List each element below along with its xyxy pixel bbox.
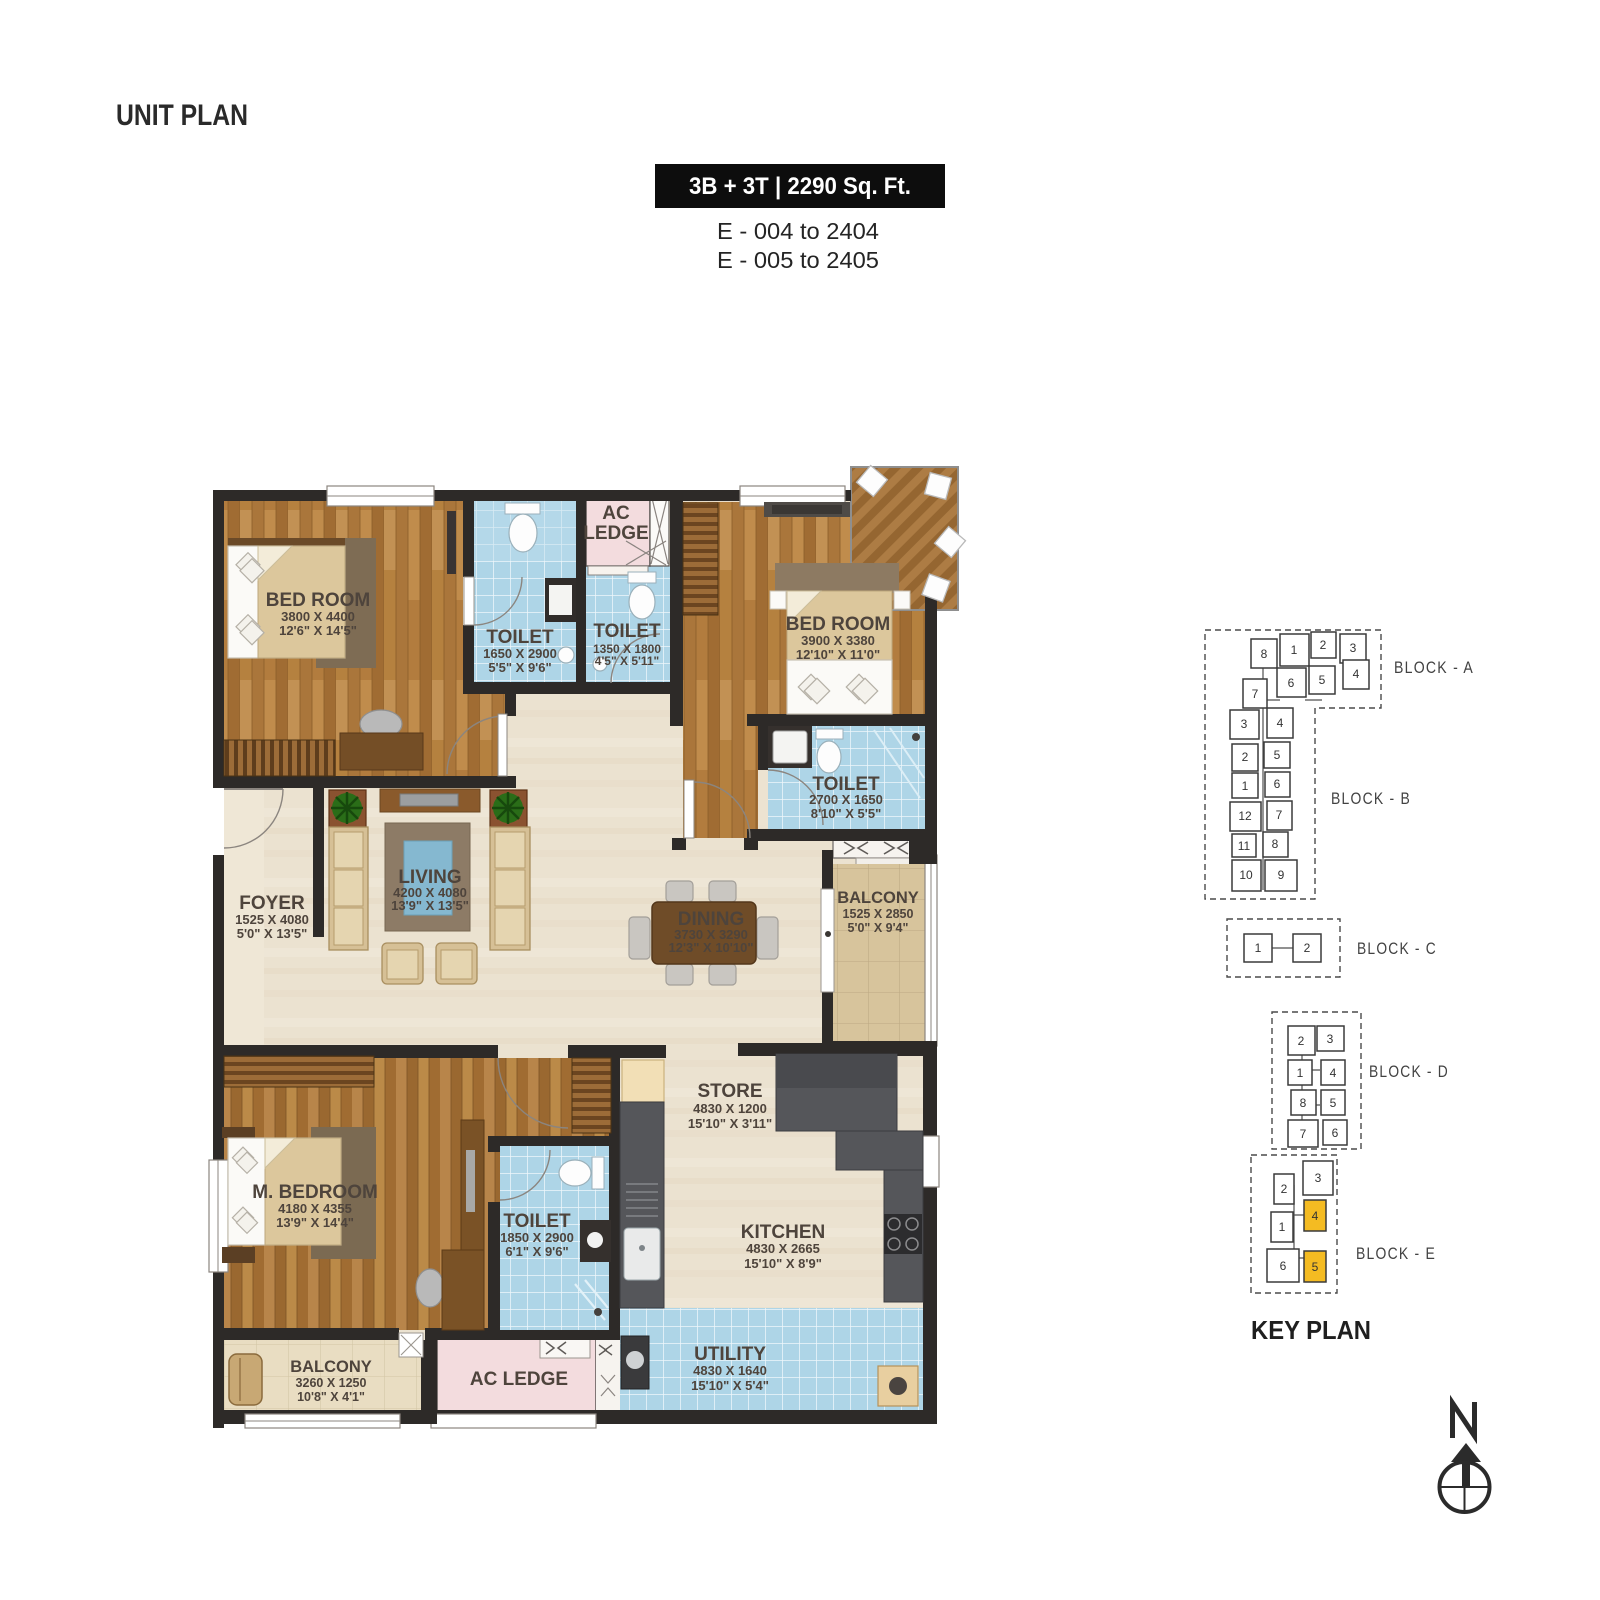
svg-text:3: 3 bbox=[1241, 717, 1248, 731]
svg-text:11: 11 bbox=[1238, 839, 1251, 853]
svg-text:12'6" X 14'5": 12'6" X 14'5" bbox=[279, 623, 357, 638]
svg-text:FOYER: FOYER bbox=[239, 893, 305, 914]
svg-text:15'10" X 8'9": 15'10" X 8'9" bbox=[744, 1256, 822, 1271]
svg-text:12'3" X 10'10": 12'3" X 10'10" bbox=[668, 940, 753, 955]
svg-text:1850 X 2900: 1850 X 2900 bbox=[500, 1230, 574, 1245]
svg-text:1: 1 bbox=[1255, 941, 1262, 955]
svg-text:4: 4 bbox=[1312, 1209, 1319, 1223]
svg-text:6: 6 bbox=[1274, 777, 1281, 791]
svg-text:E - 004 to 2404: E - 004 to 2404 bbox=[717, 218, 879, 244]
svg-text:1525 X 2850: 1525 X 2850 bbox=[843, 907, 914, 921]
svg-text:8: 8 bbox=[1272, 837, 1279, 851]
svg-text:4: 4 bbox=[1353, 667, 1360, 681]
svg-text:TOILET: TOILET bbox=[486, 627, 554, 648]
svg-text:2: 2 bbox=[1298, 1034, 1305, 1048]
svg-text:7: 7 bbox=[1252, 687, 1259, 701]
svg-text:3: 3 bbox=[1327, 1032, 1334, 1046]
svg-text:12'10" X 11'0": 12'10" X 11'0" bbox=[796, 647, 880, 662]
svg-text:7: 7 bbox=[1276, 808, 1283, 822]
svg-text:6: 6 bbox=[1280, 1259, 1287, 1273]
svg-text:KEY PLAN: KEY PLAN bbox=[1251, 1315, 1371, 1345]
svg-text:5: 5 bbox=[1312, 1260, 1319, 1274]
svg-text:10'8" X 4'1": 10'8" X 4'1" bbox=[297, 1390, 365, 1404]
svg-text:BALCONY: BALCONY bbox=[837, 889, 919, 907]
svg-text:TOILET: TOILET bbox=[503, 1211, 571, 1232]
svg-text:6'1" X 9'6": 6'1" X 9'6" bbox=[505, 1244, 568, 1259]
svg-text:3260 X 1250: 3260 X 1250 bbox=[296, 1376, 367, 1390]
svg-text:M. BEDROOM: M. BEDROOM bbox=[252, 1182, 378, 1203]
svg-text:4'5" X 5'11": 4'5" X 5'11" bbox=[595, 654, 659, 668]
svg-text:15'10" X 5'4": 15'10" X 5'4" bbox=[691, 1378, 769, 1393]
svg-text:2: 2 bbox=[1281, 1182, 1288, 1196]
svg-text:BLOCK - C: BLOCK - C bbox=[1357, 939, 1437, 958]
svg-text:E - 005 to 2405: E - 005 to 2405 bbox=[717, 247, 879, 273]
svg-text:5'5" X 9'6": 5'5" X 9'6" bbox=[488, 660, 551, 675]
svg-text:8: 8 bbox=[1261, 647, 1268, 661]
svg-text:3: 3 bbox=[1315, 1171, 1322, 1185]
svg-text:5: 5 bbox=[1319, 673, 1326, 687]
svg-text:3: 3 bbox=[1350, 641, 1357, 655]
svg-text:TOILET: TOILET bbox=[593, 621, 661, 642]
svg-text:2700 X 1650: 2700 X 1650 bbox=[809, 792, 883, 807]
svg-text:BLOCK - A: BLOCK - A bbox=[1394, 658, 1474, 677]
svg-text:1525 X 4080: 1525 X 4080 bbox=[235, 912, 309, 927]
svg-text:4830 X 1200: 4830 X 1200 bbox=[693, 1101, 767, 1116]
svg-text:AC LEDGE: AC LEDGE bbox=[470, 1369, 568, 1390]
svg-text:BED ROOM: BED ROOM bbox=[266, 590, 371, 611]
svg-text:4: 4 bbox=[1277, 716, 1284, 730]
svg-text:STORE: STORE bbox=[697, 1081, 762, 1102]
svg-text:8'10" X 5'5": 8'10" X 5'5" bbox=[811, 806, 882, 821]
svg-text:1: 1 bbox=[1291, 643, 1298, 657]
svg-text:7: 7 bbox=[1300, 1127, 1307, 1141]
svg-text:5: 5 bbox=[1330, 1096, 1337, 1110]
svg-text:AC: AC bbox=[602, 503, 630, 524]
svg-text:BED ROOM: BED ROOM bbox=[786, 614, 891, 635]
svg-text:BLOCK - D: BLOCK - D bbox=[1369, 1062, 1449, 1081]
svg-text:12: 12 bbox=[1238, 809, 1252, 823]
svg-text:1: 1 bbox=[1297, 1066, 1304, 1080]
svg-text:3800 X 4400: 3800 X 4400 bbox=[281, 609, 355, 624]
svg-text:4180 X 4355: 4180 X 4355 bbox=[278, 1201, 352, 1216]
svg-text:2: 2 bbox=[1304, 941, 1311, 955]
svg-text:KITCHEN: KITCHEN bbox=[741, 1222, 825, 1243]
svg-text:13'9" X 13'5": 13'9" X 13'5" bbox=[391, 898, 469, 913]
svg-text:3900 X 3380: 3900 X 3380 bbox=[801, 633, 875, 648]
svg-text:4830 X 2665: 4830 X 2665 bbox=[746, 1241, 820, 1256]
svg-text:5'0" X 9'4": 5'0" X 9'4" bbox=[848, 921, 909, 935]
svg-text:UTILITY: UTILITY bbox=[694, 1344, 766, 1365]
svg-text:2: 2 bbox=[1320, 638, 1327, 652]
svg-text:2: 2 bbox=[1242, 750, 1249, 764]
svg-text:5: 5 bbox=[1274, 748, 1281, 762]
svg-text:10: 10 bbox=[1239, 868, 1253, 882]
svg-text:1: 1 bbox=[1242, 779, 1249, 793]
svg-text:LEDGE: LEDGE bbox=[583, 523, 648, 544]
svg-text:6: 6 bbox=[1288, 676, 1295, 690]
svg-text:UNIT PLAN: UNIT PLAN bbox=[116, 99, 248, 132]
svg-text:4830 X 1640: 4830 X 1640 bbox=[693, 1363, 767, 1378]
svg-text:9: 9 bbox=[1278, 868, 1285, 882]
svg-text:1650 X 2900: 1650 X 2900 bbox=[483, 646, 557, 661]
svg-text:1: 1 bbox=[1279, 1220, 1286, 1234]
svg-text:15'10" X 3'11": 15'10" X 3'11" bbox=[688, 1116, 772, 1131]
svg-text:4: 4 bbox=[1330, 1066, 1337, 1080]
svg-text:8: 8 bbox=[1300, 1096, 1307, 1110]
svg-text:5'0" X 13'5": 5'0" X 13'5" bbox=[237, 926, 308, 941]
svg-text:BLOCK - E: BLOCK - E bbox=[1356, 1244, 1436, 1263]
svg-text:6: 6 bbox=[1332, 1126, 1339, 1140]
svg-text:BLOCK - B: BLOCK - B bbox=[1331, 789, 1411, 808]
svg-text:3B + 3T | 2290 Sq. Ft.: 3B + 3T | 2290 Sq. Ft. bbox=[689, 173, 911, 200]
svg-text:13'9" X 14'4": 13'9" X 14'4" bbox=[276, 1215, 354, 1230]
svg-text:BALCONY: BALCONY bbox=[290, 1358, 372, 1376]
